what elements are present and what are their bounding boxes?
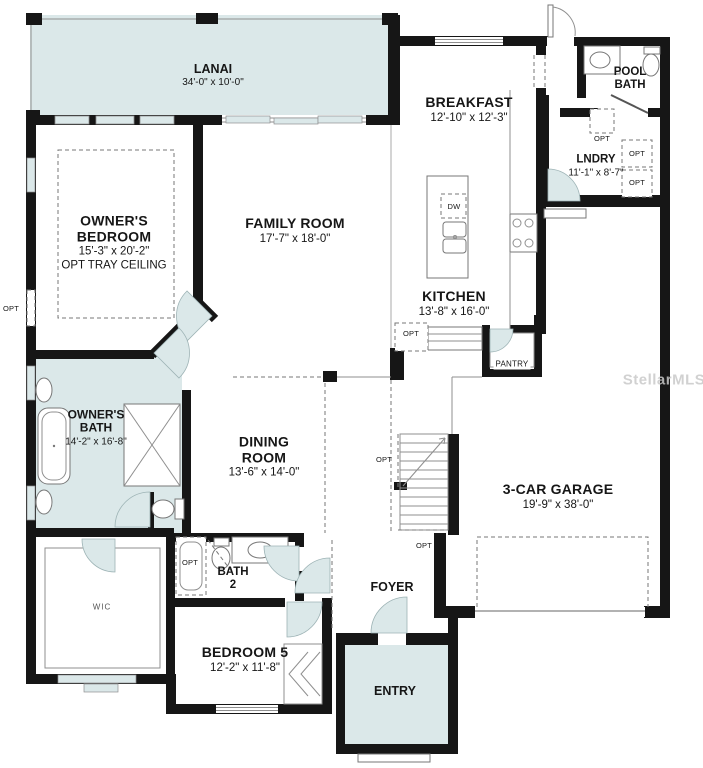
room-label-family-room: FAMILY ROOM 17'-7" x 18'-0" (245, 216, 344, 246)
opt-label: OPT (416, 542, 432, 550)
dw-label: DW (448, 203, 461, 211)
room-label-bath2: BATH 2 (215, 566, 251, 592)
room-name: FOYER (370, 580, 413, 594)
opt-label: OPT (594, 135, 610, 143)
room-name: LNDRY (568, 153, 623, 166)
front-door (371, 597, 407, 633)
room-label-bedroom5: BEDROOM 5 12'-2" x 11'-8" (202, 645, 289, 675)
floor-plan-drawing (0, 0, 703, 768)
range-icon (510, 214, 537, 252)
room-dims: 34'-0" x 10'-0" (182, 77, 244, 88)
room-dims: 17'-7" x 18'-0" (245, 233, 344, 246)
garage-door (475, 537, 648, 617)
room-label-pantry: PANTRY (494, 361, 531, 370)
room-label-dining-room: DINING ROOM 13'-6" x 14'-0" (229, 434, 300, 479)
room-name: WIC (93, 604, 112, 613)
opt-label: OPT (376, 456, 392, 464)
garage-step (544, 209, 586, 218)
closet-bifold-doors (284, 644, 322, 704)
opt-label: OPT (629, 150, 645, 158)
room-label-owners-bedroom: OWNER'S BEDROOM 15'-3" x 20'-2" OPT TRAY… (59, 213, 169, 272)
room-dims: 11'-1" x 8'-7" (568, 167, 623, 178)
room-label-foyer: FOYER (370, 580, 413, 594)
room-label-pool-bath: POOL BATH (610, 66, 650, 92)
kitchen-island (427, 176, 468, 278)
opt-label: OPT (182, 559, 198, 567)
room-name: 3-CAR GARAGE (503, 482, 614, 498)
room-name: LANAI (182, 62, 244, 76)
room-name: FAMILY ROOM (245, 216, 344, 232)
bedroom5-door (287, 602, 322, 637)
room-label-wic: WIC (93, 604, 112, 613)
wic-door (82, 539, 115, 572)
room-dims: 19'-9" x 38'-0" (503, 499, 614, 512)
floor-plan: LANAI 34'-0" x 10'-0" OWNER'S BEDROOM 15… (0, 0, 703, 768)
hall-door (295, 558, 330, 593)
room-dims: 13'-6" x 14'-0" (229, 467, 300, 480)
breakfast-exterior-door (548, 5, 575, 37)
shower-icon (124, 404, 180, 486)
room-name: PANTRY (494, 361, 531, 370)
room-name: BREAKFAST (425, 95, 512, 111)
room-name: ENTRY (374, 684, 416, 698)
room-label-laundry: LNDRY 11'-1" x 8'-7" (568, 153, 623, 178)
bath2-door (264, 546, 299, 581)
room-label-lanai: LANAI 34'-0" x 10'-0" (182, 62, 244, 88)
room-dims: 15'-3" x 20'-2" (59, 246, 169, 259)
room-label-kitchen: KITCHEN 13'-8" x 16'-0" (419, 289, 490, 319)
room-dims: 14'-2" x 16'-8" (65, 436, 127, 447)
room-note: OPT TRAY CEILING (59, 260, 169, 273)
room-name: BEDROOM 5 (202, 645, 289, 661)
opt-label: OPT (403, 330, 419, 338)
toilet-icon (152, 499, 184, 519)
room-name: KITCHEN (419, 289, 490, 305)
room-dims: 12'-10" x 12'-3" (425, 112, 512, 125)
watermark: StellarMLS (623, 373, 703, 390)
room-dims: 13'-8" x 16'-0" (419, 306, 490, 319)
room-label-entry: ENTRY (374, 684, 416, 698)
room-label-owners-bath: OWNER'S BATH 14'-2" x 16'-8" (65, 408, 127, 447)
opt-label: OPT (3, 305, 19, 313)
room-name: OWNER'S BEDROOM (59, 213, 169, 244)
room-dims: 12'-2" x 11'-8" (202, 662, 289, 675)
room-name: DINING ROOM (229, 434, 299, 465)
room-name: OWNER'S BATH (65, 408, 127, 435)
room-name: POOL BATH (610, 66, 650, 92)
entry-stoop (358, 754, 430, 762)
room-label-breakfast: BREAKFAST 12'-10" x 12'-3" (425, 95, 512, 125)
opt-label: OPT (629, 179, 645, 187)
double-sink-icon (443, 222, 466, 253)
pantry-door (490, 329, 513, 352)
room-name: BATH 2 (215, 566, 251, 592)
room-label-garage: 3-CAR GARAGE 19'-9" x 38'-0" (503, 482, 614, 512)
